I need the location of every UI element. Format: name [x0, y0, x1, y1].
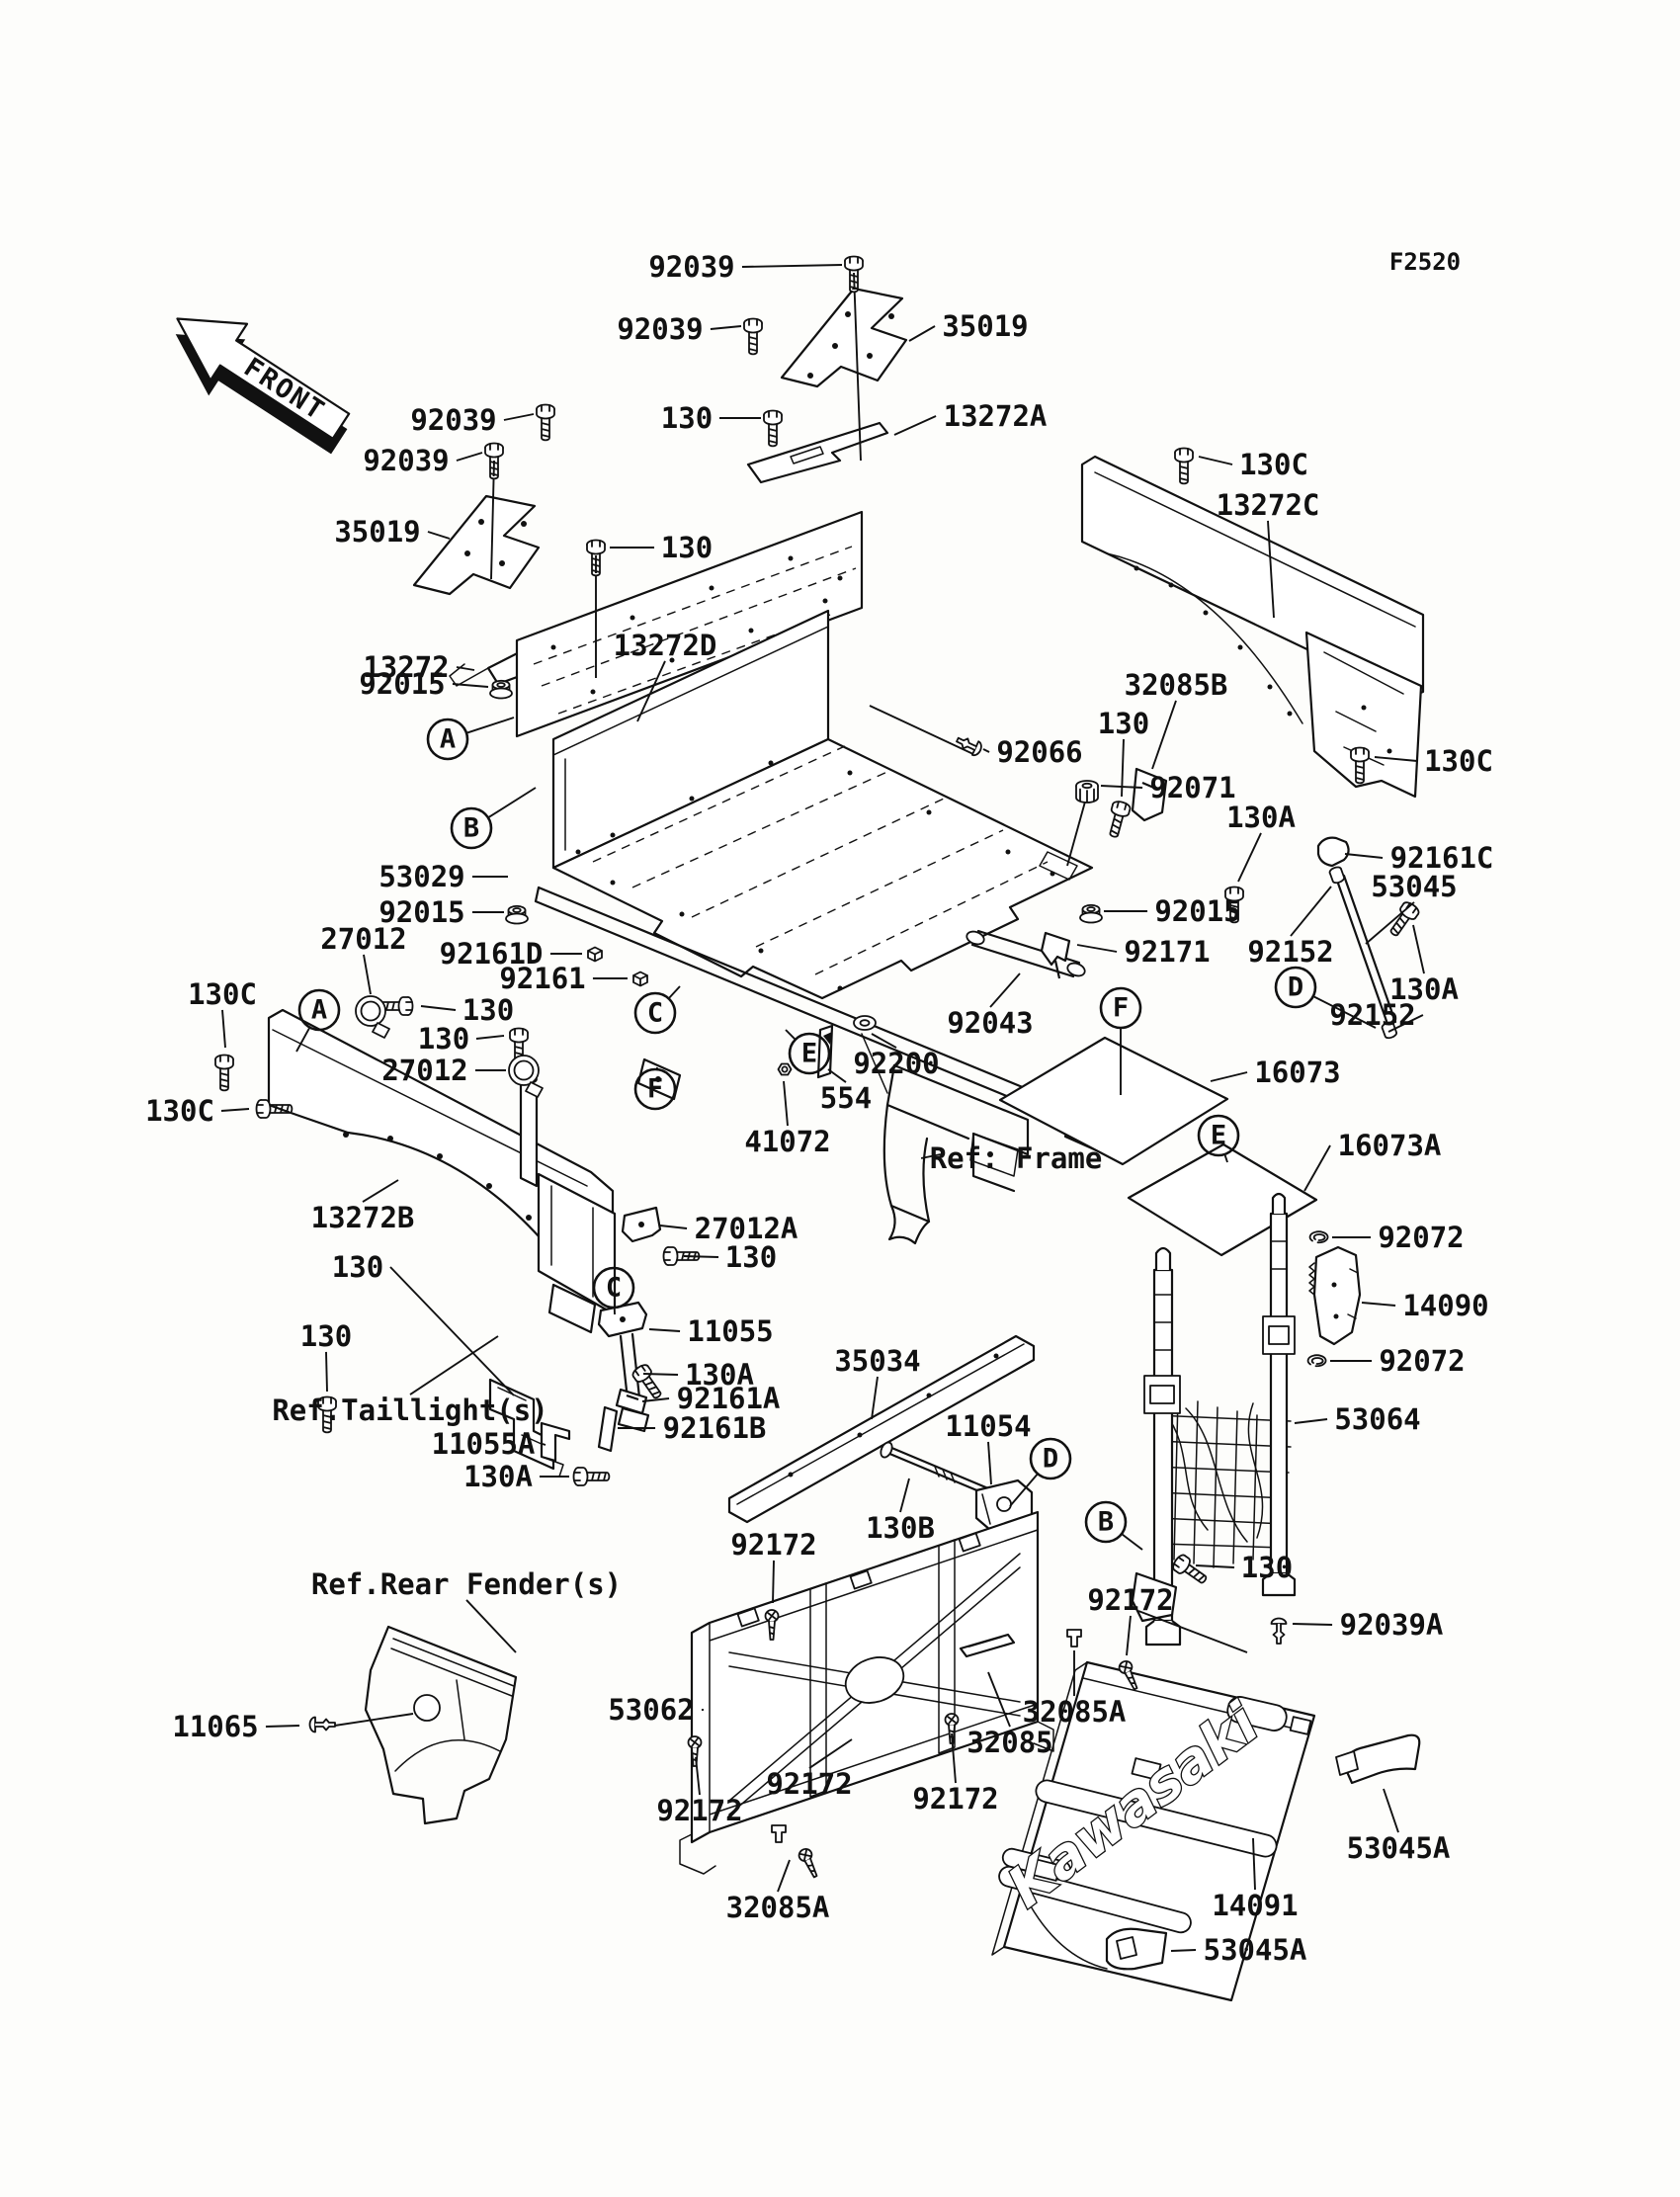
part-label-92071: 92071 — [1149, 771, 1235, 804]
part-label-14091: 14091 — [1212, 1889, 1298, 1922]
part-label-130A: 130A — [463, 1460, 533, 1493]
part-label-F2520: F2520 — [1389, 248, 1461, 276]
bracket-27012a — [623, 1208, 660, 1241]
latch-53045a-right — [1336, 1735, 1419, 1783]
part-label-130C: 130C — [188, 977, 257, 1011]
leader-line — [467, 718, 514, 732]
part-label-Ref. Frame: Ref. Frame — [930, 1141, 1103, 1175]
part-label-92039A: 92039A — [1340, 1608, 1444, 1642]
part-label-130: 130 — [725, 1240, 777, 1274]
leader-line — [773, 1561, 774, 1603]
leader-line — [1122, 739, 1124, 797]
leader-line — [1127, 1616, 1131, 1655]
flange-nut-icon — [1080, 905, 1102, 923]
part-label-13272A: 13272A — [944, 399, 1048, 433]
leader-line — [1238, 833, 1261, 882]
bolt-icon — [744, 319, 762, 355]
callout-letter-A: A — [311, 995, 327, 1026]
part-label-92172: 92172 — [766, 1767, 852, 1801]
part-label-92015: 92015 — [1154, 894, 1240, 928]
part-label-32085A: 32085A — [1023, 1695, 1127, 1729]
part-label-53064: 53064 — [1334, 1402, 1420, 1436]
rod-130b — [879, 1441, 988, 1494]
leader-line — [1171, 1950, 1196, 1951]
bolt-icon — [1105, 800, 1132, 838]
leader-line — [1362, 1303, 1395, 1306]
part-label-92200: 92200 — [853, 1047, 939, 1080]
part-label-53062: 53062 — [608, 1693, 694, 1727]
leader-line — [221, 1109, 249, 1111]
part-label-13272B: 13272B — [311, 1201, 415, 1234]
leader-line — [363, 1180, 398, 1202]
screw-icon — [798, 1847, 821, 1880]
part-label-130C: 130C — [1239, 448, 1308, 481]
push-pin-icon — [955, 733, 983, 757]
callout-letter-C: C — [647, 998, 663, 1029]
leader-line — [489, 788, 536, 817]
washer-icon — [854, 1016, 876, 1030]
bracket-11055a — [542, 1423, 569, 1477]
callout-letter-A: A — [440, 724, 456, 755]
part-label-92072: 92072 — [1379, 1344, 1465, 1378]
part-label-16073A: 16073A — [1338, 1129, 1442, 1162]
leader-line — [543, 1444, 546, 1445]
leader-line — [660, 1225, 687, 1228]
push-pin-icon — [310, 1718, 336, 1732]
callout-letter-F: F — [647, 1074, 663, 1105]
clamp-92161c — [1318, 838, 1349, 866]
part-label-32085: 32085 — [966, 1726, 1052, 1759]
damper-cap-icon — [1076, 781, 1098, 803]
part-label-35034: 35034 — [834, 1344, 920, 1378]
part-label-92039: 92039 — [617, 312, 703, 346]
leader-line — [1152, 701, 1176, 769]
leader-line — [711, 326, 741, 329]
leader-line — [1366, 902, 1414, 944]
callout-letter-C: C — [606, 1273, 622, 1304]
part-label-14090: 14090 — [1402, 1289, 1488, 1322]
part-label-92152: 92152 — [1329, 998, 1415, 1032]
leader-line — [669, 986, 680, 998]
part-label-130A: 130A — [1226, 801, 1296, 834]
part-label-130: 130 — [462, 993, 514, 1027]
callout-letter-E: E — [1211, 1121, 1226, 1151]
clip-icon — [1067, 1630, 1081, 1647]
part-label-130: 130 — [661, 401, 713, 435]
part-label-27012: 27012 — [320, 922, 406, 956]
leader-line — [900, 1479, 909, 1512]
part-label-92172: 92172 — [656, 1794, 742, 1827]
square-nut-icon — [633, 972, 647, 986]
leader-line — [1291, 887, 1331, 936]
parts-diagram-page: FRONT — [0, 0, 1680, 2197]
part-label-92161: 92161 — [499, 962, 585, 995]
push-pin-icon — [1272, 1619, 1287, 1645]
part-label-92039: 92039 — [648, 250, 734, 284]
plate-35019-top — [782, 289, 906, 386]
leader-line — [1345, 854, 1383, 858]
latch-53045a-bottom — [1107, 1929, 1166, 1970]
part-label-Ref.Taillight(s): Ref.Taillight(s) — [272, 1394, 547, 1427]
bracket-14090 — [1309, 1247, 1360, 1344]
strip-92161b — [599, 1407, 617, 1451]
part-label-92152: 92152 — [1247, 935, 1333, 969]
callout-letter-F: F — [1113, 993, 1129, 1024]
leader-line — [649, 1329, 680, 1331]
leader-line — [1304, 1145, 1330, 1191]
square-nut-icon — [588, 948, 602, 962]
part-label-32085B: 32085B — [1125, 668, 1228, 702]
leader-line — [1123, 1535, 1142, 1550]
leader-line — [266, 1726, 299, 1727]
leader-line — [983, 749, 989, 752]
leader-line — [684, 1256, 718, 1257]
part-label-11065: 11065 — [172, 1710, 258, 1743]
callout-letter-B: B — [463, 813, 479, 844]
part-label-Ref.Rear Fender(s): Ref.Rear Fender(s) — [311, 1567, 622, 1601]
leader-line — [643, 1374, 678, 1375]
clip-icon — [772, 1825, 786, 1842]
leader-line — [778, 1860, 790, 1892]
leader-line — [894, 416, 936, 435]
fender-sketch — [366, 1627, 516, 1823]
snap-ring-icon — [1310, 1231, 1328, 1242]
front-arrow: FRONT — [151, 291, 366, 468]
part-label-92161A: 92161A — [677, 1382, 781, 1415]
part-label-92039: 92039 — [363, 444, 449, 477]
callout-letter-D: D — [1043, 1444, 1058, 1475]
bushing-icon — [1329, 866, 1346, 885]
hook-ring-icon — [509, 1056, 543, 1097]
part-label-11054: 11054 — [945, 1409, 1031, 1443]
part-label-53045: 53045 — [1371, 870, 1457, 903]
leader-line — [421, 1006, 456, 1010]
leader-line — [784, 1081, 788, 1126]
leader-line — [1293, 1624, 1332, 1625]
part-label-92015: 92015 — [359, 667, 445, 701]
bolt-icon — [1175, 449, 1193, 484]
bolt-icon — [1171, 1553, 1211, 1587]
part-label-11055A: 11055A — [432, 1427, 536, 1461]
part-label-53029: 53029 — [378, 860, 464, 893]
bolt-icon — [574, 1468, 610, 1485]
bolt-icon — [764, 411, 782, 447]
part-label-35019: 35019 — [334, 515, 420, 549]
leader-line — [988, 1442, 991, 1484]
part-label-92171: 92171 — [1124, 935, 1210, 969]
leader-line — [1199, 457, 1232, 465]
part-label-130: 130 — [661, 531, 713, 564]
part-label-92043: 92043 — [947, 1006, 1033, 1040]
part-label-11055: 11055 — [687, 1314, 773, 1348]
sheet-16073a — [1129, 1144, 1316, 1255]
part-label-13272D: 13272D — [614, 629, 717, 662]
part-label-53045A: 53045A — [1204, 1933, 1307, 1967]
leader-line — [466, 1600, 516, 1652]
callout-letter-E: E — [801, 1039, 817, 1069]
leader-line — [1211, 1072, 1247, 1081]
leader-line — [326, 1352, 327, 1392]
part-label-130: 130 — [332, 1250, 383, 1284]
bolt-icon — [215, 1056, 233, 1091]
snap-ring-icon — [1308, 1355, 1326, 1366]
part-label-130B: 130B — [866, 1511, 935, 1545]
roller-92043 — [965, 929, 1086, 977]
leader-line — [364, 955, 371, 994]
leader-line — [1413, 925, 1424, 973]
leader-line — [742, 265, 842, 267]
callout-letter-D: D — [1288, 972, 1303, 1003]
leader-line — [786, 1030, 795, 1039]
leader-line — [1196, 1565, 1234, 1567]
leader-line — [1077, 945, 1117, 952]
part-label-92172: 92172 — [912, 1782, 998, 1816]
part-label-130: 130 — [1241, 1551, 1293, 1584]
part-label-92172: 92172 — [1087, 1583, 1173, 1617]
leader-line — [222, 1010, 225, 1048]
part-label-130C: 130C — [145, 1094, 214, 1128]
leader-line — [457, 453, 482, 461]
exploded-parts-diagram: FRONT — [0, 0, 1680, 2197]
leader-line — [990, 973, 1020, 1007]
part-label-554: 554 — [820, 1081, 872, 1115]
part-label-32085A: 32085A — [726, 1891, 830, 1924]
part-label-130C: 130C — [1424, 744, 1493, 778]
part-label-53045A: 53045A — [1347, 1831, 1451, 1865]
part-label-130: 130 — [1098, 707, 1149, 740]
part-label-92039: 92039 — [410, 403, 496, 437]
part-label-27012: 27012 — [381, 1054, 467, 1087]
flange-nut-icon — [490, 681, 512, 699]
part-label-92172: 92172 — [730, 1528, 816, 1562]
leader-line — [909, 326, 935, 341]
leader-line — [504, 414, 534, 420]
part-label-92072: 92072 — [1378, 1221, 1464, 1254]
flange-nut-icon — [506, 906, 528, 924]
part-label-35019: 35019 — [942, 309, 1028, 343]
part-label-41072: 41072 — [744, 1125, 830, 1158]
hex-nut-icon — [779, 1064, 792, 1075]
part-label-16073: 16073 — [1254, 1056, 1340, 1089]
leader-line — [476, 1036, 504, 1039]
plate-35019-left — [414, 496, 539, 594]
part-label-13272C: 13272C — [1217, 488, 1320, 522]
leader-line — [428, 532, 450, 539]
bolt-icon — [537, 405, 554, 441]
leader-line — [390, 1267, 514, 1395]
part-label-130: 130 — [300, 1319, 352, 1353]
leader-line — [872, 1377, 878, 1419]
part-label-92066: 92066 — [996, 735, 1082, 769]
callout-letter-B: B — [1098, 1507, 1114, 1538]
leader-line — [1295, 1419, 1327, 1423]
part-label-92161B: 92161B — [663, 1411, 767, 1445]
part-label-130: 130 — [418, 1022, 469, 1056]
leader-line — [1384, 1789, 1398, 1832]
clamp-92161a — [617, 1390, 646, 1413]
